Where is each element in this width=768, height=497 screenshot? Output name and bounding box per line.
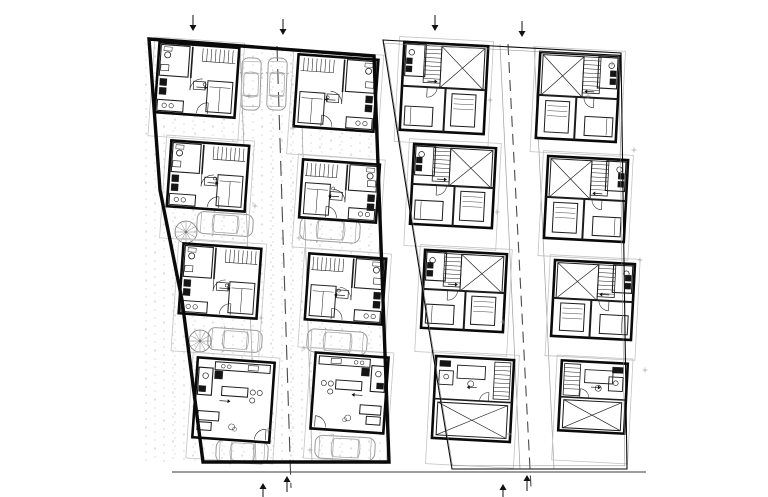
section-marker-icon [190,15,197,31]
section-marker-icon [519,21,526,37]
level-mark-icon [259,316,264,321]
section-marker-icon [284,476,291,492]
level-mark-icon [495,210,500,215]
housing-unit-L2 [160,135,255,244]
car-icon [265,58,290,111]
housing-unit-UR4 [552,355,633,464]
upper-floor-plan [383,15,648,497]
section-marker-icon [432,15,439,31]
level-mark-icon [488,98,493,103]
ground-floor-site-plan [145,15,394,497]
car-icon [196,209,254,239]
section-marker-icon [524,475,531,491]
spiral-stair-icon [189,330,211,352]
housing-unit-UR1 [530,47,625,157]
housing-unit-UR2 [538,151,633,261]
housing-unit-R1 [287,49,384,160]
housing-unit-UL1 [394,37,493,147]
car-icon [314,433,375,463]
housing-unit-R2 [292,154,385,253]
section-marker-icon [280,19,287,35]
section-marker-icon [500,484,507,497]
housing-unit-L1 [148,37,245,142]
road-centerline [277,46,291,488]
drawing-sheet [0,0,768,497]
section-marker-icon [260,483,267,497]
housing-unit-UR3 [545,255,640,361]
housing-unit-R4 [303,347,394,464]
level-mark-icon [247,94,252,99]
car-icon [207,325,263,355]
floor-plan-drawing [0,0,768,497]
housing-unit-R3 [298,248,392,353]
housing-unit-UL4 [426,351,520,468]
housing-unit-UL3 [415,245,512,357]
level-mark-icon [638,258,643,263]
level-mark-icon [632,148,637,153]
level-mark-icon [643,368,648,373]
housing-unit-UL2 [404,139,501,251]
